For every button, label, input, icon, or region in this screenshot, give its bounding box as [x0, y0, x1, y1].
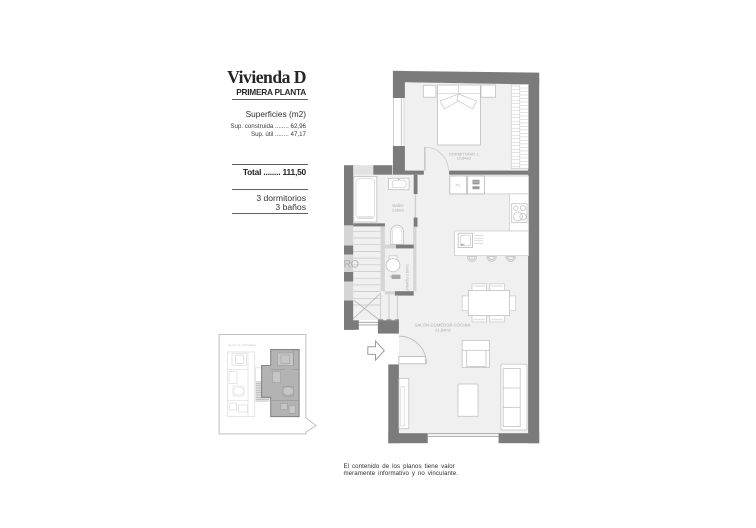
- svg-text:3,55m2: 3,55m2: [392, 208, 404, 212]
- svg-text:PLANTA PRIMERA: PLANTA PRIMERA: [228, 343, 256, 347]
- svg-text:21,94m2: 21,94m2: [435, 328, 451, 333]
- svg-text:3ºBAÑO 2,50m2: 3ºBAÑO 2,50m2: [405, 264, 410, 290]
- svg-text:10,84m2: 10,84m2: [457, 157, 471, 161]
- svg-text:RO: RO: [343, 258, 358, 270]
- svg-text:frig.: frig.: [456, 183, 461, 187]
